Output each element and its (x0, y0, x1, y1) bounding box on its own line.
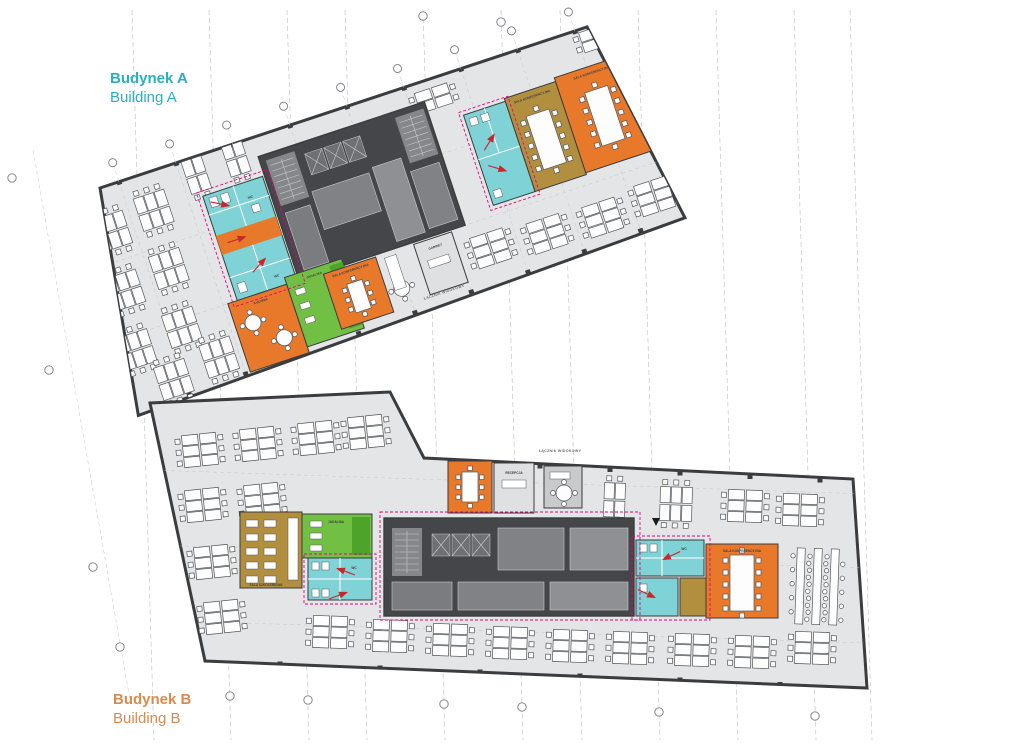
building-b-hot-desks (788, 548, 845, 626)
room-label-training: SALA SZKOLENIOWA (249, 583, 283, 587)
building-b-conference-room: SALA KONFERENCYJNA (706, 544, 778, 618)
building-b-meeting-small (448, 461, 492, 513)
room-label-conf-b: SALA KONFERENCYJNA (723, 549, 762, 553)
building-b-title-pl: Budynek B (113, 691, 192, 708)
building-b-quiet-room (544, 466, 582, 508)
building-a-title-en: Building A (110, 89, 177, 106)
building-b-core (384, 518, 634, 616)
building-b: SALA SZKOLENIOWA JADALNIA WC (150, 392, 867, 688)
room-label-wc-b2: WC (681, 547, 687, 551)
building-b-title-en: Building B (113, 710, 181, 727)
building-b-training-room: SALA SZKOLENIOWA (240, 512, 302, 588)
building-b-wc-right: WC (636, 540, 706, 616)
building-b-reception: RECEPCJA (494, 463, 534, 513)
floor-plan-page: WC WC KUCHNIA (0, 0, 1024, 754)
connector-label-b: ŁĄCZNIK WIDOKOWY (539, 449, 582, 453)
building-a-title-pl: Budynek A (110, 70, 188, 87)
room-label-dining-b: JADALNIA (328, 520, 345, 524)
room-label-wc-b1: WC (351, 566, 357, 570)
building-b-dining: JADALNIA (302, 514, 372, 558)
building-a: WC WC KUCHNIA (59, 0, 692, 416)
room-label-reception: RECEPCJA (505, 471, 523, 475)
floor-plan-drawing: WC WC KUCHNIA (0, 0, 1024, 754)
